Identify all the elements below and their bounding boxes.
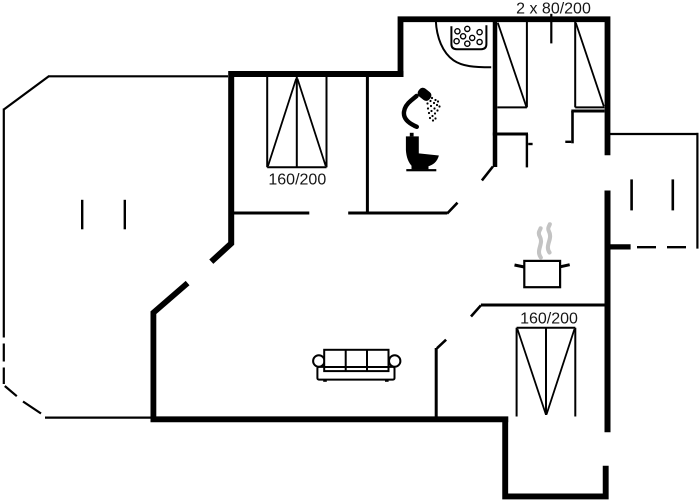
svg-text:2 x 80/200: 2 x 80/200 <box>516 0 591 17</box>
svg-text:160/200: 160/200 <box>520 310 578 327</box>
svg-text:160/200: 160/200 <box>268 172 326 189</box>
